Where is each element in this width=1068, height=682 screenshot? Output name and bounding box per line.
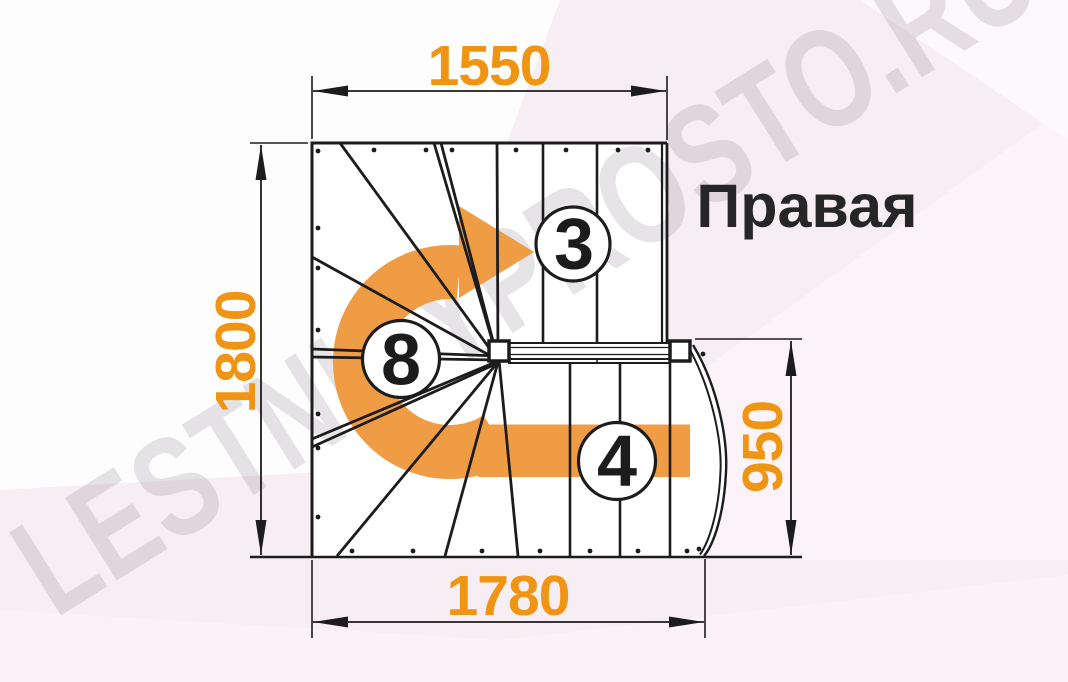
landing-plank bbox=[508, 343, 671, 359]
arrowhead-right bbox=[669, 617, 704, 628]
dimension-label-right: 950 bbox=[730, 401, 796, 493]
newel-post-left bbox=[489, 341, 509, 361]
arrowhead-down bbox=[786, 520, 797, 555]
landing bbox=[489, 341, 690, 363]
plan-title: Правая bbox=[696, 171, 917, 241]
dimension-label-left: 1800 bbox=[203, 291, 269, 414]
newel-post-right bbox=[670, 341, 690, 361]
dimension-label-top: 1550 bbox=[428, 33, 551, 99]
dimension-label-bottom: 1780 bbox=[447, 563, 570, 629]
step-number-4: 4 bbox=[597, 420, 637, 502]
staircase-plan-canvas: LESTNICYPROSTO.RU bbox=[0, 0, 1068, 682]
arrowhead-up bbox=[786, 341, 797, 376]
outline-curve-inner bbox=[689, 347, 721, 555]
step-number-3: 3 bbox=[554, 203, 594, 285]
step-number-8: 8 bbox=[381, 319, 421, 401]
arrowhead-down bbox=[256, 520, 267, 555]
step-line bbox=[497, 143, 498, 360]
arrowhead-left bbox=[313, 617, 348, 628]
arrowhead-right bbox=[631, 86, 666, 97]
arrowhead-left bbox=[313, 86, 348, 97]
arrowhead-up bbox=[256, 145, 267, 180]
outline-curve-outer bbox=[693, 345, 726, 556]
